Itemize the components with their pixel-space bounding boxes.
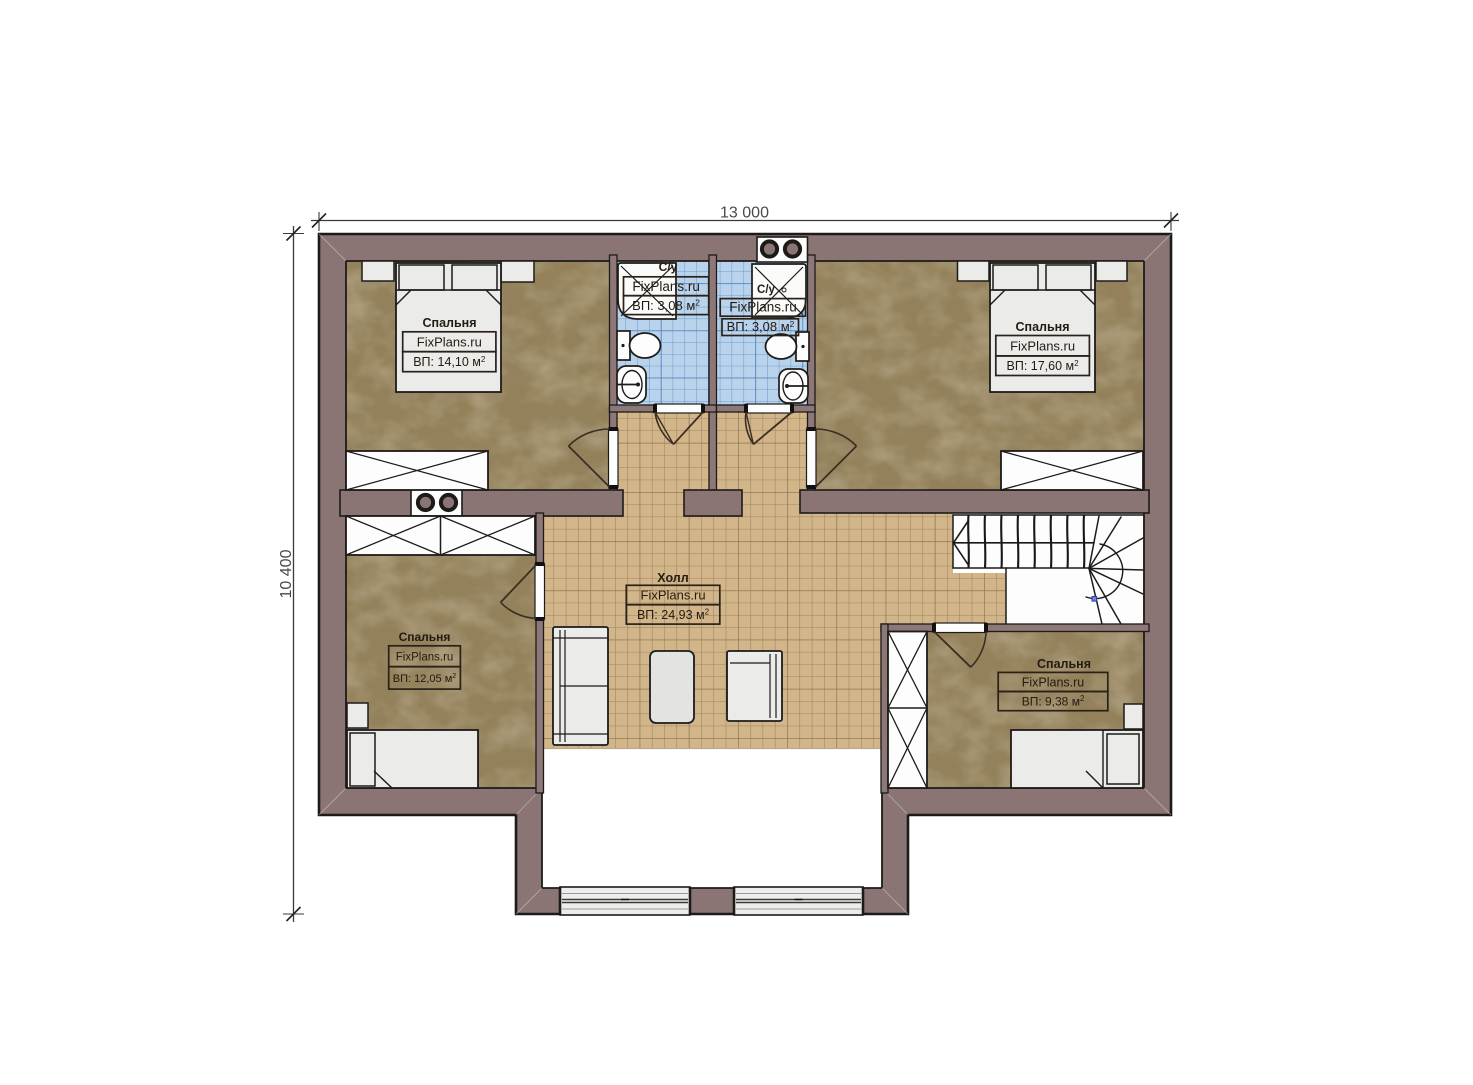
- svg-text:FixPlans.ru: FixPlans.ru: [641, 588, 706, 603]
- svg-text:10 400: 10 400: [278, 549, 295, 598]
- svg-text:FixPlans.ru: FixPlans.ru: [417, 334, 482, 349]
- svg-text:ВП: 9,38 м2: ВП: 9,38 м2: [1022, 694, 1085, 708]
- svg-text:ВП: 17,60 м2: ВП: 17,60 м2: [1007, 359, 1080, 373]
- svg-text:FixPlans.ru: FixPlans.ru: [632, 279, 700, 294]
- svg-text:ВП: 3,08 м2: ВП: 3,08 м2: [727, 319, 795, 334]
- svg-text:FixPlans.ru: FixPlans.ru: [1022, 675, 1085, 689]
- svg-text:Спальня: Спальня: [423, 316, 477, 330]
- svg-text:ВП: 24,93 м2: ВП: 24,93 м2: [637, 608, 710, 622]
- svg-text:Спальня: Спальня: [1016, 320, 1070, 334]
- svg-text:FixPlans.ru: FixPlans.ru: [729, 300, 797, 315]
- svg-text:ВП: 14,10 м2: ВП: 14,10 м2: [413, 355, 486, 369]
- svg-text:Холл: Холл: [657, 571, 688, 585]
- svg-text:FixPlans.ru: FixPlans.ru: [1010, 338, 1075, 353]
- svg-text:FixPlans.ru: FixPlans.ru: [396, 651, 454, 663]
- svg-text:С/у: С/у: [757, 284, 776, 296]
- svg-text:ВП: 12,05 м2: ВП: 12,05 м2: [393, 671, 457, 685]
- svg-text:Спальня: Спальня: [399, 630, 451, 644]
- svg-text:ВП: 3,08 м2: ВП: 3,08 м2: [632, 297, 700, 313]
- svg-text:С/у: С/у: [659, 260, 678, 274]
- svg-text:13 000: 13 000: [720, 205, 769, 222]
- svg-text:Спальня: Спальня: [1037, 657, 1091, 671]
